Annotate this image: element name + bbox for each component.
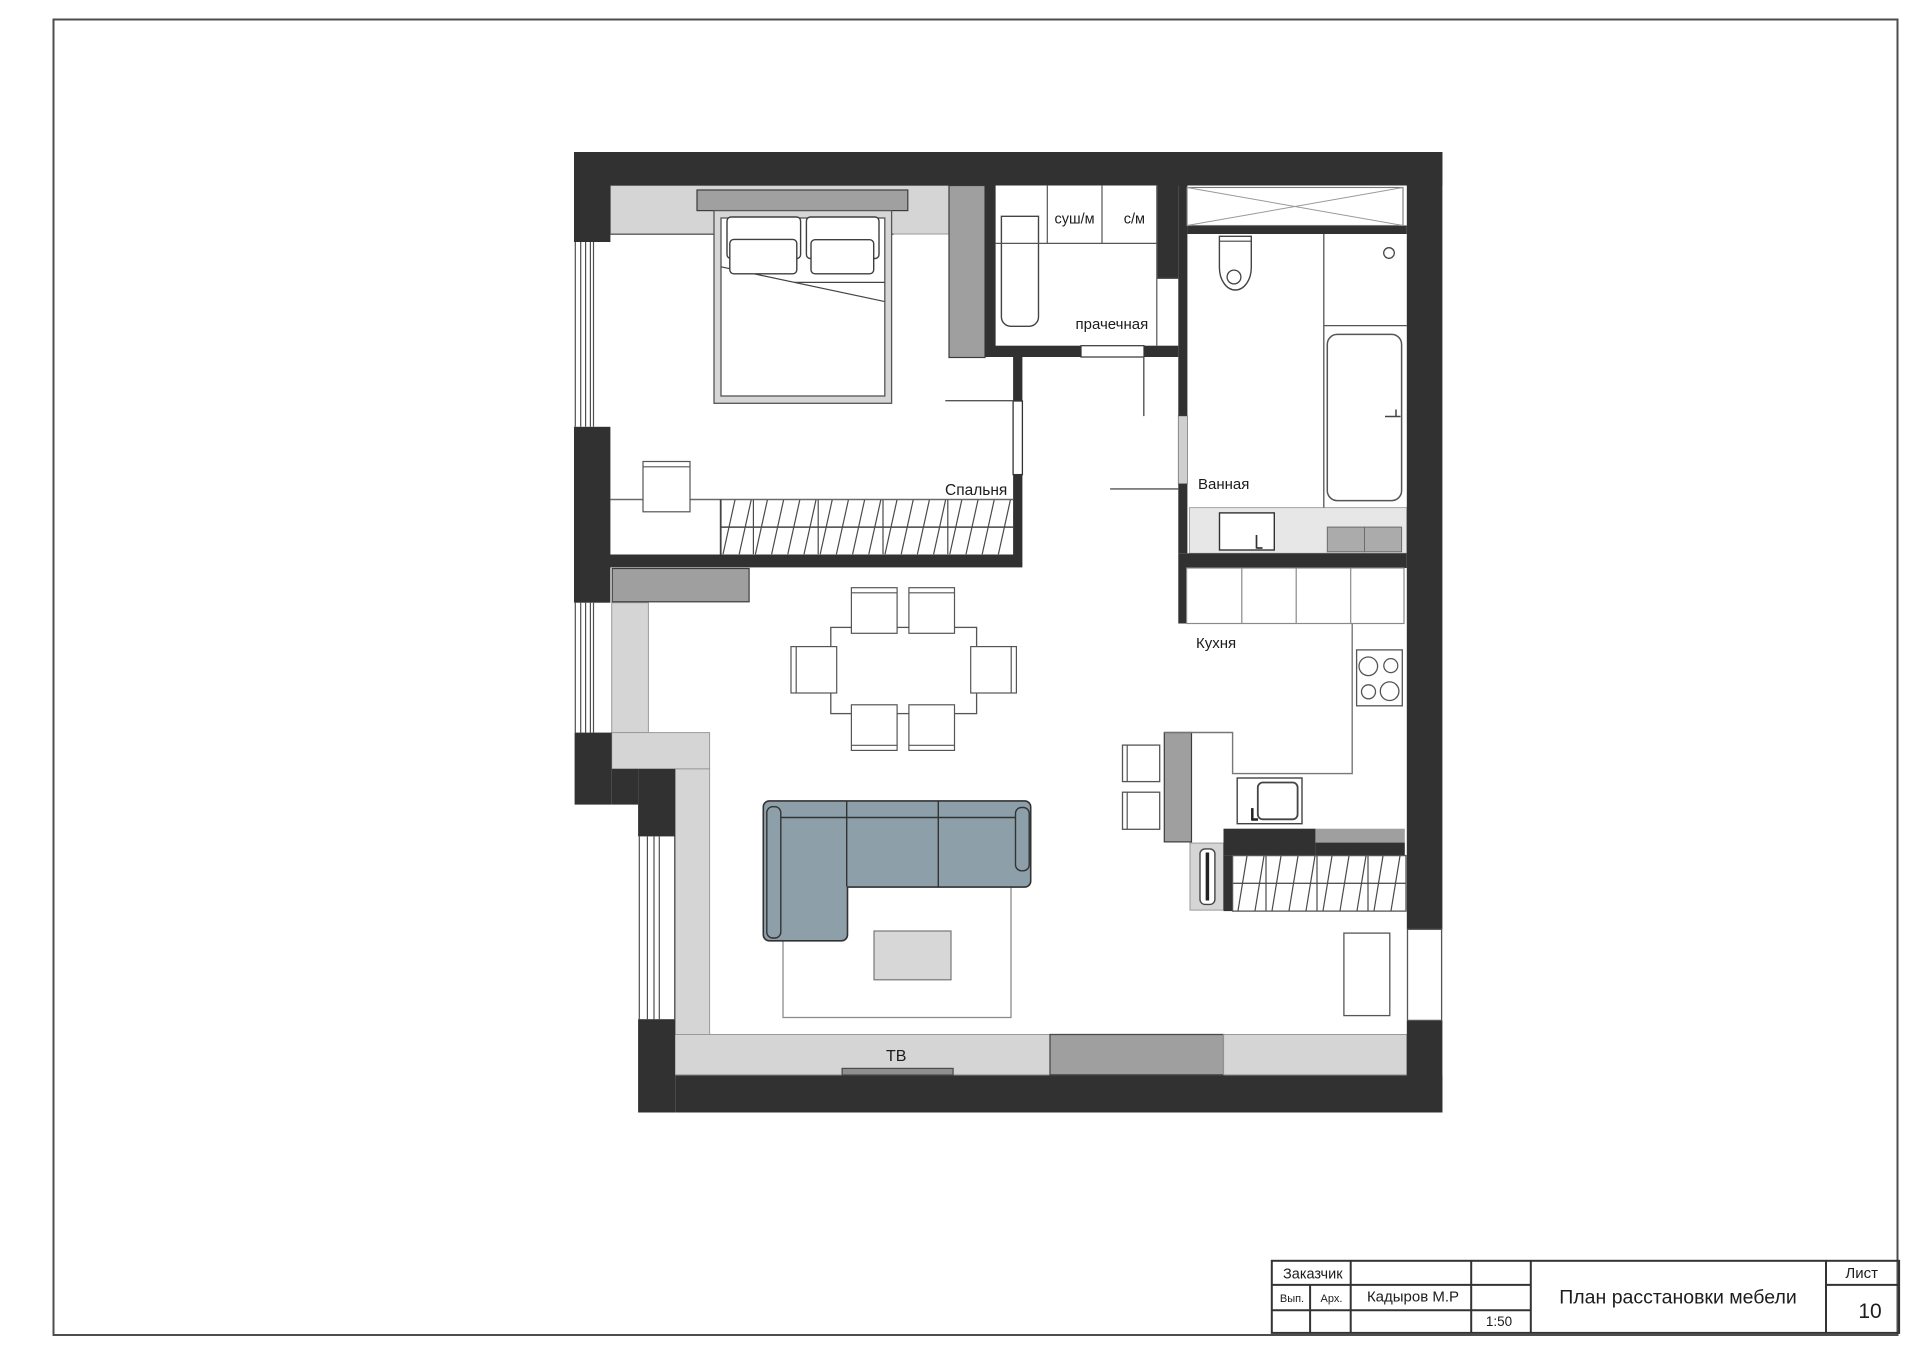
svg-text:Спальня: Спальня <box>945 482 1007 499</box>
svg-text:10: 10 <box>1858 1300 1881 1323</box>
svg-text:Арх.: Арх. <box>1321 1293 1343 1305</box>
svg-text:суш/м: суш/м <box>1055 212 1095 228</box>
svg-text:Кухня: Кухня <box>1196 635 1236 652</box>
svg-text:ТВ: ТВ <box>886 1048 906 1065</box>
svg-text:с/м: с/м <box>1124 212 1145 228</box>
svg-text:Вып.: Вып. <box>1280 1293 1304 1305</box>
svg-text:прачечная: прачечная <box>1076 316 1149 333</box>
svg-text:План расстановки мебели: План расстановки мебели <box>1559 1287 1796 1309</box>
svg-text:Заказчик: Заказчик <box>1283 1267 1343 1283</box>
svg-text:Ванная: Ванная <box>1198 476 1249 493</box>
svg-text:1:50: 1:50 <box>1486 1314 1512 1329</box>
svg-text:Лист: Лист <box>1845 1265 1878 1282</box>
svg-text:Кадыров М.Р: Кадыров М.Р <box>1367 1289 1459 1306</box>
